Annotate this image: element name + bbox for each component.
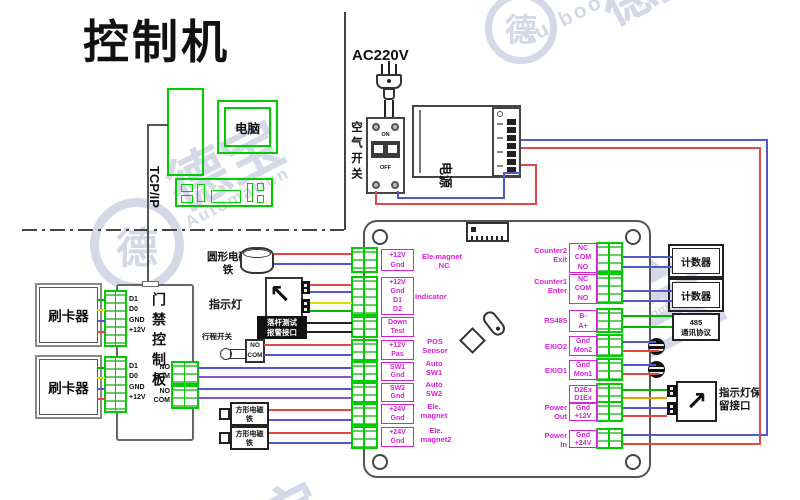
desc-line: Out xyxy=(531,412,567,421)
wire xyxy=(623,326,672,328)
wire xyxy=(623,290,672,292)
desc-line: magnet xyxy=(417,411,451,420)
pin-label-group: +12V Gnd D1 D2 xyxy=(381,277,414,315)
psu-pin-mark xyxy=(497,137,503,139)
tcpip-line xyxy=(147,124,149,284)
psu-terminal xyxy=(507,119,516,125)
pin-label-group: SW2 Gnd xyxy=(381,383,414,402)
card-reader-label: 刷卡器 xyxy=(48,305,89,325)
pin-label: NO xyxy=(570,294,596,303)
pin-label: Gnd xyxy=(382,414,413,423)
psu-terminal-strip xyxy=(492,107,521,177)
breaker-switch-block xyxy=(371,141,400,158)
terminal-block-green xyxy=(351,339,378,361)
terminal-block-green xyxy=(351,316,378,338)
connector-pin xyxy=(486,236,488,240)
wire xyxy=(503,172,505,199)
tcpip-line-stub xyxy=(147,124,168,126)
pin-label-group: Gnd Mon2 xyxy=(569,336,597,356)
pin-label: COM xyxy=(247,351,263,361)
psu-pin-mark xyxy=(497,151,503,153)
wire xyxy=(97,309,105,311)
desc-line: Counter2 xyxy=(521,246,567,255)
wire xyxy=(274,263,352,265)
counter-box-1: 计数器 xyxy=(672,248,720,274)
label-line: 报警接口 xyxy=(257,328,307,338)
terminal-desc: RS485 xyxy=(523,316,567,325)
plug-prong xyxy=(381,64,383,74)
wire xyxy=(310,284,352,286)
breaker-on-label: ON xyxy=(368,132,403,138)
wire xyxy=(623,300,672,302)
pin-label: +24V xyxy=(382,428,413,437)
wire xyxy=(97,377,105,379)
wire xyxy=(623,350,659,352)
pin-label-group: B- A+ xyxy=(569,310,597,332)
wire xyxy=(623,373,659,375)
connector-pin xyxy=(496,236,498,240)
pin-label-group: Gnd Mon1 xyxy=(569,360,597,380)
pin-label: Down xyxy=(382,318,413,327)
desc-line: Ele. xyxy=(417,426,455,435)
desc-line: EXIO2 xyxy=(523,342,567,351)
pin-label: SW2 xyxy=(382,384,413,393)
limit-switch-body xyxy=(230,349,246,359)
wire xyxy=(97,320,105,322)
wire xyxy=(198,376,352,378)
ac220v-label: AC220V xyxy=(352,47,409,64)
psu-terminal xyxy=(507,151,516,157)
logo-char-watermark: 宝 xyxy=(240,456,339,500)
mobo-part xyxy=(247,183,253,202)
label-line: 铁 xyxy=(232,439,267,448)
terminal-block-green xyxy=(596,273,623,304)
pin-label: +12V xyxy=(382,278,413,287)
pin-label-group: Down Test xyxy=(381,317,414,337)
pin-label-group: Gnd +12V xyxy=(569,403,597,421)
wire xyxy=(310,291,352,293)
breaker-toggle xyxy=(388,145,397,153)
wire xyxy=(623,434,768,436)
pin-label: Gnd xyxy=(382,437,413,446)
connector-pin xyxy=(476,236,478,240)
label-line: 485 xyxy=(674,318,718,328)
cylinder-top xyxy=(243,249,271,258)
psu-terminal xyxy=(507,127,516,133)
wire xyxy=(97,299,105,301)
psu-screw xyxy=(497,111,503,117)
terminal-desc: Ele. magnet xyxy=(417,402,451,420)
pin-label-group: SW1 Gnd xyxy=(381,362,414,381)
mobo-part xyxy=(257,195,264,203)
connector-pin xyxy=(501,236,503,240)
terminal-block-green xyxy=(171,385,199,409)
psu-terminal xyxy=(507,143,516,149)
label-line: 铁 xyxy=(232,415,267,424)
terminal-desc: Auto SW2 xyxy=(419,380,449,398)
pin-label: Mon1 xyxy=(570,370,596,379)
pin-label: D2 xyxy=(382,305,413,314)
pin-label: Gnd xyxy=(382,393,413,402)
desc-line: Power xyxy=(531,431,567,440)
wire xyxy=(307,331,352,333)
pin-label: D2Ex xyxy=(570,386,596,394)
wire xyxy=(264,344,352,346)
computer-box: 电脑 xyxy=(217,100,278,154)
wire xyxy=(198,397,352,399)
terminal-desc: Power Out xyxy=(531,403,567,421)
pin-label: Gnd xyxy=(382,260,413,270)
desc-line: SW2 xyxy=(419,389,449,398)
desc-line: Ele. xyxy=(417,402,451,411)
pin-label: COM xyxy=(148,397,170,404)
indicator-connector xyxy=(301,281,310,294)
terminal-block-green xyxy=(171,361,199,385)
pin-label-group: D2Ex D1Ex xyxy=(569,385,597,403)
pin-label: Gnd xyxy=(570,337,596,346)
terminal-desc: Indicator xyxy=(415,292,459,301)
desc-line: Sensor xyxy=(417,346,453,355)
pin-label: SW1 xyxy=(382,363,413,372)
access-board-notch xyxy=(142,281,159,287)
wire xyxy=(759,147,761,445)
terminal-block-green xyxy=(104,356,127,413)
wire xyxy=(535,164,537,205)
region-border-dashdot xyxy=(22,229,344,231)
pin-label: NO xyxy=(247,341,263,351)
breaker-screw xyxy=(391,123,399,131)
desc-line: SW1 xyxy=(419,368,449,377)
pin-label: Pas xyxy=(382,350,413,359)
plug-neck xyxy=(383,88,395,100)
terminal-block-green xyxy=(351,361,378,382)
plug-prong xyxy=(388,61,390,74)
limit-switch-label: 行程开关 xyxy=(202,331,232,342)
psu-terminal xyxy=(507,135,516,141)
wire xyxy=(310,302,352,304)
pin-label: +24V xyxy=(382,405,413,414)
logo-chars-watermark: 德宝 xyxy=(583,0,715,40)
wire xyxy=(623,407,667,409)
wire xyxy=(623,266,672,268)
label-line: 指示灯保 xyxy=(719,387,773,400)
pin-label-group: +12V Pas xyxy=(381,340,414,360)
plug-prong xyxy=(395,64,397,74)
wire xyxy=(307,322,352,324)
round-magnet-cylinder xyxy=(240,247,274,274)
pin-label: Mon2 xyxy=(570,346,596,355)
pc-tower-outline xyxy=(167,88,204,176)
reserved-connector xyxy=(667,385,677,397)
wire xyxy=(269,409,352,411)
psu-label: 电源 xyxy=(440,158,456,192)
breaker-screw xyxy=(372,123,380,131)
terminal-desc: EXIO1 xyxy=(523,366,567,375)
wire xyxy=(269,442,352,444)
pin-label: NO xyxy=(150,388,170,395)
label-line: 留接口 xyxy=(719,400,773,413)
circuit-breaker: ON OFF xyxy=(366,117,405,194)
wire xyxy=(766,139,768,436)
label-line: 方形电磁 xyxy=(232,430,267,439)
desc-line: In xyxy=(531,440,567,449)
wire xyxy=(623,364,656,366)
pin-label: +12V xyxy=(382,341,413,350)
breaker-screw xyxy=(391,181,399,189)
wire xyxy=(269,432,352,434)
breaker-screw xyxy=(372,181,380,189)
pin-label: D1 xyxy=(129,363,138,370)
desc-line: Power xyxy=(531,403,567,412)
indicator-lamp-box: ↖ xyxy=(265,277,303,319)
terminal-block-green xyxy=(596,334,623,357)
computer-label: 电脑 xyxy=(224,107,271,147)
pin-label-group: +12V Gnd xyxy=(381,249,414,271)
wire xyxy=(623,315,672,317)
pin-label: COM xyxy=(570,284,596,293)
counter-box-2: 计数器 xyxy=(672,282,720,308)
connector-key xyxy=(471,227,476,232)
terminal-desc: Counter2 Exit xyxy=(521,246,567,264)
label-line: 方形电磁 xyxy=(232,406,267,415)
square-magnet-stub xyxy=(219,408,230,420)
pin-label: +12V xyxy=(129,394,146,401)
drop-arm-test-box: 落杆测试 报警接口 xyxy=(257,316,307,339)
breaker-off-label: OFF xyxy=(368,165,403,171)
wire xyxy=(97,398,105,400)
terminal-block-green xyxy=(351,247,378,273)
label-line: 通讯协议 xyxy=(674,328,718,338)
mobo-part xyxy=(257,183,264,191)
wire xyxy=(274,253,352,255)
pin-label: +12V xyxy=(382,250,413,260)
mobo-part xyxy=(211,190,241,203)
counter-label: 计数器 xyxy=(681,254,711,269)
pin-label: NC xyxy=(570,244,596,253)
wire xyxy=(198,367,352,369)
desc-line: Exit xyxy=(521,255,567,264)
board-mount-hole xyxy=(625,229,641,245)
pin-label: Gnd xyxy=(382,287,413,296)
limit-switch-contacts: NO COM xyxy=(245,339,265,363)
motherboard-graphic xyxy=(175,178,273,207)
pin-label: Gnd xyxy=(570,431,596,439)
wire xyxy=(97,331,105,333)
pin-label: D0 xyxy=(129,306,138,313)
pin-label: COM xyxy=(148,373,170,380)
pin-label-group: NC COM NO xyxy=(569,243,597,273)
region-border-vertical xyxy=(344,12,346,230)
wire xyxy=(397,197,505,199)
terminal-block-green xyxy=(596,242,623,273)
board-top-connector xyxy=(466,222,509,242)
card-reader-1: 刷卡器 xyxy=(39,287,98,343)
square-magnet-1: 方形电磁 铁 xyxy=(230,402,269,426)
wire xyxy=(310,310,352,312)
connector-pin xyxy=(491,236,493,240)
terminal-block-green xyxy=(596,358,623,381)
terminal-block-green xyxy=(351,276,378,316)
pin-label: +12V xyxy=(570,412,596,420)
terminal-desc: Power In xyxy=(531,431,567,449)
pin-label: A+ xyxy=(570,321,596,331)
board-mount-hole xyxy=(372,229,388,245)
terminal-block-green xyxy=(596,428,623,449)
terminal-desc: Counter1 Enter xyxy=(521,277,567,295)
desc-line: RS485 xyxy=(523,316,567,325)
card-reader-label: 刷卡器 xyxy=(48,377,89,397)
desc-line: _NC xyxy=(415,261,469,270)
pin-label-group: +24V Gnd xyxy=(381,427,414,447)
wiring-diagram: 德 Turboo Automation 德宝 德 德宝 Automation 德… xyxy=(0,0,800,500)
pin-label: NC xyxy=(570,275,596,284)
desc-line: Auto xyxy=(419,359,449,368)
pin-label: D1 xyxy=(382,296,413,305)
indicator-label: 指示灯 xyxy=(209,296,242,312)
terminal-desc: EXIO2 xyxy=(523,342,567,351)
terminal-desc: Auto SW1 xyxy=(419,359,449,377)
pin-label: B- xyxy=(570,311,596,321)
square-magnet-stub xyxy=(219,432,230,444)
pin-label: COM xyxy=(570,253,596,262)
arrow-up-left-icon: ↖ xyxy=(269,279,291,310)
desc-line: EXIO1 xyxy=(523,366,567,375)
pill-dot xyxy=(495,326,501,332)
desc-line: magnet2 xyxy=(417,435,455,444)
pin-label: NO xyxy=(150,364,170,371)
terminal-desc: Ele. magnet2 xyxy=(417,426,455,444)
terminal-block-green xyxy=(351,382,378,403)
air-switch-label: 空气开关 xyxy=(348,121,364,193)
wire xyxy=(623,415,667,417)
psu-pin-mark xyxy=(497,123,503,125)
wire xyxy=(623,443,761,445)
terminal-desc: POS Sensor xyxy=(417,337,453,355)
pin-label: Gnd xyxy=(382,372,413,381)
mobo-part xyxy=(181,184,193,192)
pin-label: GND xyxy=(129,384,145,391)
wire xyxy=(97,388,105,390)
desc-line: Counter1 xyxy=(521,277,567,286)
reserved-indicator-box: ↗ xyxy=(676,381,717,422)
wire xyxy=(375,203,537,205)
pin-label: NO xyxy=(570,263,596,272)
mobo-part xyxy=(181,195,193,203)
arrow-up-right-icon: ↗ xyxy=(686,386,708,417)
desc-line: Ele.magnet xyxy=(415,252,469,261)
pin-label: D0 xyxy=(129,373,138,380)
board-mount-hole xyxy=(625,454,641,470)
psu-terminal xyxy=(507,159,516,165)
board-mount-hole xyxy=(372,454,388,470)
counter-label: 计数器 xyxy=(681,288,711,303)
indicator-connector xyxy=(301,299,310,313)
wire xyxy=(269,419,352,421)
terminal-block-green xyxy=(351,426,378,449)
plug-lead xyxy=(384,100,386,117)
pin-label: +12V xyxy=(129,327,146,334)
wire xyxy=(521,147,761,149)
reserved-interface-label: 指示灯保 留接口 xyxy=(719,387,773,413)
pin-label: +24V xyxy=(570,439,596,447)
desc-line: POS xyxy=(417,337,453,346)
desc-line: Auto xyxy=(419,380,449,389)
plug-lead xyxy=(392,100,394,117)
page-title: 控制机 xyxy=(83,6,230,72)
reserved-connector xyxy=(667,402,677,415)
desc-line: Enter xyxy=(521,286,567,295)
pin-label: D1Ex xyxy=(570,394,596,402)
pin-label-group: +24V Gnd xyxy=(381,404,414,424)
mobo-part xyxy=(197,184,205,202)
wire xyxy=(198,388,352,390)
pin-label: D1 xyxy=(129,296,138,303)
wire xyxy=(623,389,667,391)
brand-logo-watermark: 德 xyxy=(90,198,184,292)
plug-dot xyxy=(387,79,391,83)
terminal-block-green xyxy=(596,401,623,422)
psu-inner-line xyxy=(419,110,421,173)
terminal-block-green xyxy=(596,308,623,333)
wire xyxy=(521,164,537,166)
label-line: 落杆测试 xyxy=(257,318,307,328)
wire xyxy=(97,367,105,369)
connector-pin xyxy=(481,236,483,240)
wire xyxy=(521,139,768,141)
connector-pin xyxy=(471,236,473,240)
terminal-block-green xyxy=(351,403,378,426)
terminal-block-green xyxy=(104,290,127,347)
wire xyxy=(623,397,667,399)
wire xyxy=(504,172,521,174)
pin-label: Test xyxy=(382,327,413,336)
psu-pin-mark xyxy=(497,165,503,167)
wire xyxy=(623,256,672,258)
wire xyxy=(623,341,656,343)
rs485-protocol-box: 485 通讯协议 xyxy=(672,313,720,341)
pin-label-group: Gnd +24V xyxy=(569,430,597,448)
desc-line: Indicator xyxy=(415,292,459,301)
pin-label: GND xyxy=(129,317,145,324)
square-magnet-2: 方形电磁 铁 xyxy=(230,426,269,450)
pin-label: Gnd xyxy=(570,361,596,370)
breaker-toggle xyxy=(374,145,383,153)
terminal-desc: Ele.magnet _NC xyxy=(415,252,469,270)
wire xyxy=(264,354,352,356)
pin-label-group: NC COM NO xyxy=(569,274,597,304)
card-reader-2: 刷卡器 xyxy=(39,359,98,415)
pin-label: Gnd xyxy=(570,404,596,412)
